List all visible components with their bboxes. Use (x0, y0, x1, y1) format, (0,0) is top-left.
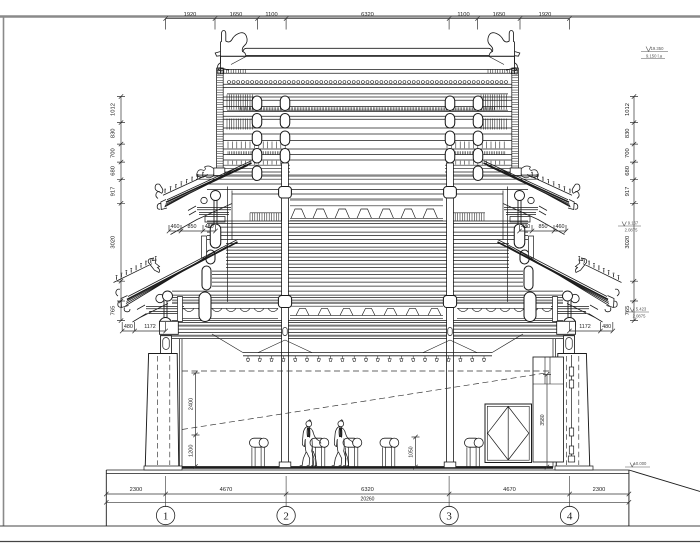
svg-text:1: 1 (163, 510, 169, 522)
svg-text:2300: 2300 (130, 487, 143, 493)
svg-text:2400: 2400 (188, 398, 194, 410)
svg-text:1200: 1200 (188, 444, 194, 456)
svg-text:9.150 l.a: 9.150 l.a (646, 54, 663, 59)
svg-text:1172: 1172 (579, 324, 591, 330)
svg-text:±0.000: ±0.000 (634, 461, 647, 466)
svg-text:2.0875: 2.0875 (625, 228, 638, 233)
svg-text:20260: 20260 (361, 497, 375, 503)
svg-text:4: 4 (567, 510, 573, 522)
svg-text:1050: 1050 (409, 446, 415, 457)
svg-text:480: 480 (521, 224, 530, 230)
svg-text:1650: 1650 (493, 12, 506, 18)
svg-text:480: 480 (205, 224, 214, 230)
svg-text:850: 850 (188, 224, 197, 230)
svg-text:460: 460 (171, 224, 180, 230)
svg-text:1100: 1100 (457, 12, 469, 18)
svg-text:6320: 6320 (361, 12, 374, 18)
svg-text:1012: 1012 (111, 103, 117, 116)
svg-text:680: 680 (625, 166, 631, 176)
svg-text:700: 700 (111, 148, 117, 158)
svg-text:765: 765 (111, 306, 117, 316)
svg-text:480: 480 (124, 324, 133, 330)
svg-text:4670: 4670 (503, 487, 516, 493)
svg-text:2.0875: 2.0875 (633, 314, 646, 319)
svg-text:917: 917 (111, 187, 117, 197)
svg-text:1650: 1650 (230, 12, 243, 18)
svg-text:19.350: 19.350 (651, 46, 664, 51)
svg-text:830: 830 (625, 128, 631, 138)
svg-text:830: 830 (111, 128, 117, 138)
svg-text:2: 2 (283, 510, 289, 522)
svg-text:680: 680 (111, 166, 117, 176)
svg-text:460: 460 (556, 224, 565, 230)
svg-text:4670: 4670 (220, 487, 233, 493)
svg-text:3020: 3020 (625, 236, 631, 249)
svg-text:2300: 2300 (593, 487, 606, 493)
svg-text:1920: 1920 (184, 12, 197, 18)
svg-text:6320: 6320 (361, 487, 374, 493)
svg-text:1012: 1012 (625, 103, 631, 116)
svg-text:5.423: 5.423 (636, 307, 647, 312)
svg-text:3: 3 (446, 510, 452, 522)
svg-text:3580: 3580 (540, 414, 546, 425)
svg-text:3020: 3020 (111, 236, 117, 249)
svg-text:850: 850 (539, 224, 548, 230)
svg-text:700: 700 (625, 148, 631, 158)
svg-text:765: 765 (625, 306, 631, 316)
svg-text:1100: 1100 (265, 12, 277, 18)
svg-text:9.167: 9.167 (628, 221, 639, 226)
svg-text:917: 917 (625, 187, 631, 197)
svg-text:480: 480 (602, 324, 611, 330)
svg-text:1920: 1920 (539, 12, 552, 18)
svg-text:1172: 1172 (144, 324, 156, 330)
